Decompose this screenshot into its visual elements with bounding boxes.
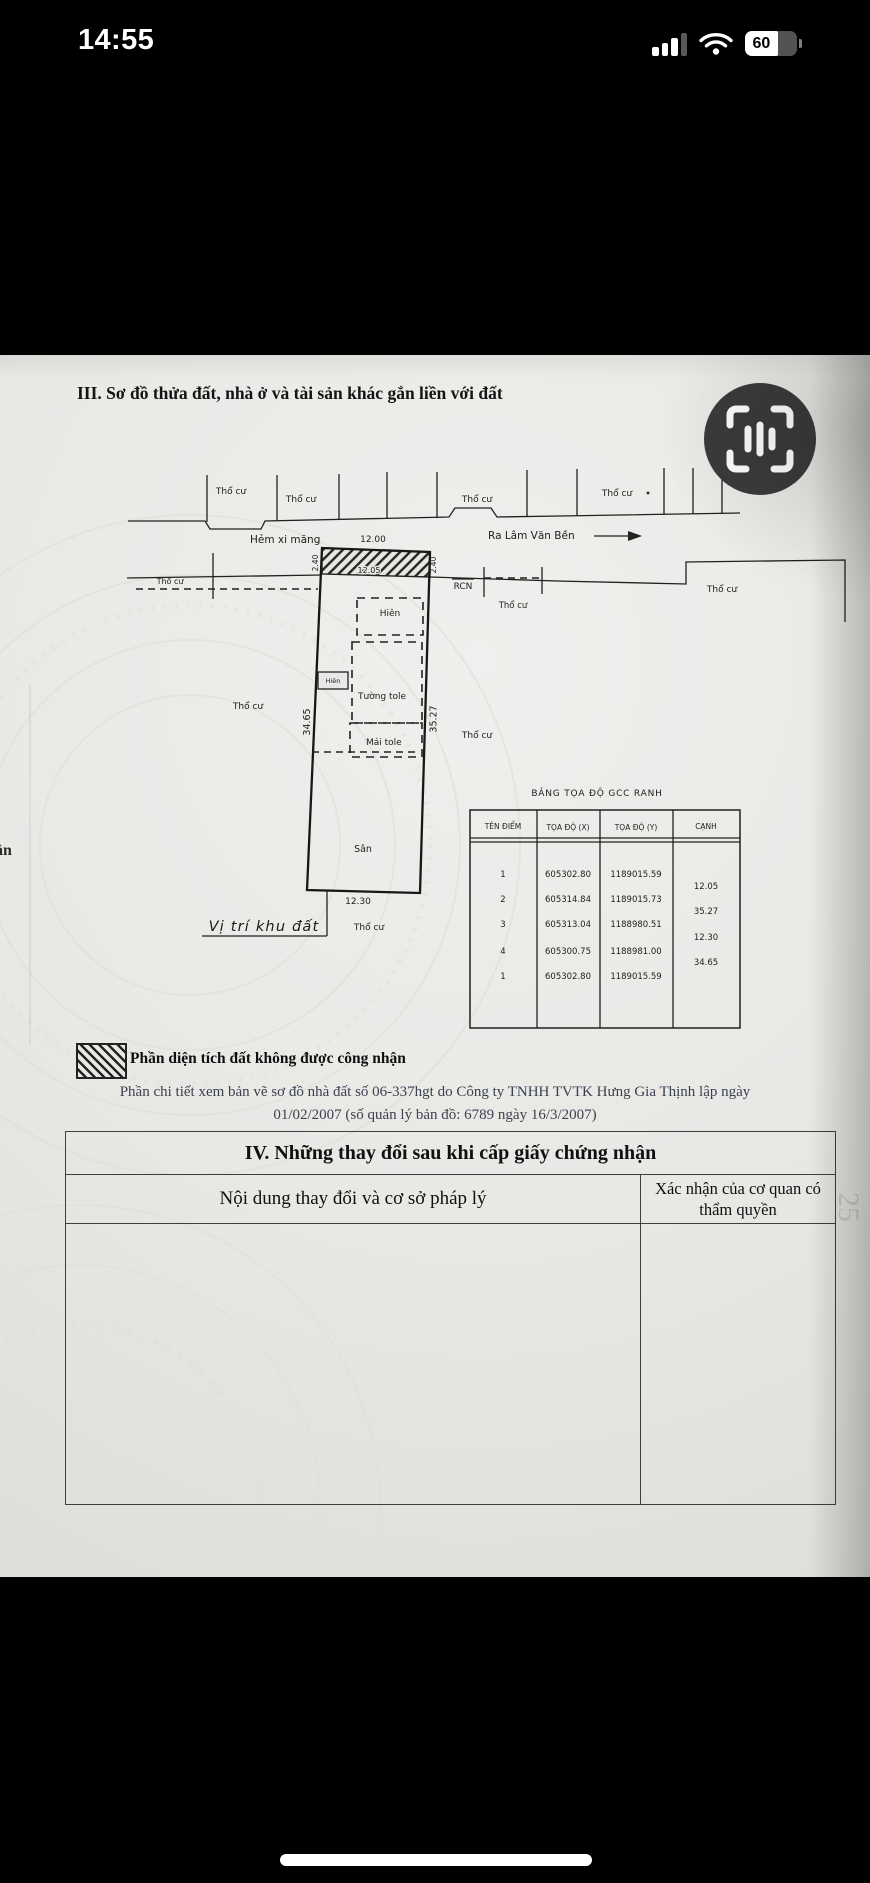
- tole-roof-label: Mái tole: [366, 738, 402, 748]
- direction-label: Ra Lâm Văn Bền: [488, 530, 575, 542]
- coord-col-header: TỌA ĐỘ (X): [545, 823, 589, 832]
- document-photo: III. Sơ đồ thửa đất, nhà ở và tài sản kh…: [0, 355, 870, 1577]
- front-dimension: 12.00: [360, 535, 386, 545]
- detail-note-line1: Phần chi tiết xem bản vẽ sơ đồ nhà đất s…: [120, 1084, 751, 1100]
- svg-text:1189015.73: 1189015.73: [610, 895, 661, 905]
- tho-cu-label: Thổ cư: [285, 494, 318, 505]
- tho-cu-label: Thổ cư: [461, 730, 494, 741]
- tho-cu-label: Thổ cư: [353, 922, 386, 933]
- scan-frame-icon: [724, 403, 796, 475]
- svg-text:605313.04: 605313.04: [545, 920, 591, 930]
- home-indicator[interactable]: [280, 1854, 592, 1866]
- coord-table-grid: [470, 810, 740, 1028]
- rcn-label: RCN: [454, 582, 473, 592]
- hatch-legend-label: Phần diện tích đất không được công nhận: [130, 1043, 406, 1075]
- detail-note: Phần chi tiết xem bản vẽ sơ đồ nhà đất s…: [40, 1081, 830, 1126]
- direction-arrowhead: [628, 531, 642, 541]
- battery-icon: 60: [745, 31, 797, 56]
- svg-text:12.05: 12.05: [694, 882, 718, 892]
- wifi-icon: [699, 31, 733, 56]
- section-4-right-header: Xác nhận của cơ quan có thẩm quyền: [640, 1175, 835, 1223]
- tho-cu-label: Thổ cư: [461, 494, 494, 505]
- tho-cu-label: Thổ cư: [601, 488, 634, 499]
- tho-cu-label: Thổ cư: [706, 584, 739, 595]
- svg-text:605300.75: 605300.75: [545, 947, 591, 957]
- battery-nub: [799, 39, 803, 48]
- coord-col-header: TỌA ĐỘ (Y): [614, 823, 658, 832]
- tole-wall-label: Tường tole: [357, 691, 407, 702]
- tho-cu-label: Thổ cư: [232, 701, 265, 712]
- svg-text:35.27: 35.27: [694, 907, 718, 917]
- back-dimension: 12.30: [345, 897, 371, 907]
- svg-text:605314.84: 605314.84: [545, 895, 591, 905]
- svg-text:1: 1: [500, 870, 505, 880]
- page-number-watermark: 25: [831, 1192, 865, 1222]
- detail-note-line2: 01/02/2007 (số quản lý bản đồ: 6789 ngày…: [273, 1107, 596, 1123]
- tole-wall-outline: [352, 642, 422, 723]
- coord-col-header: TÊN ĐIỂM: [484, 821, 522, 831]
- location-label: Vị trí khu đất: [209, 919, 320, 935]
- section-4-table: IV. Những thay đổi sau khi cấp giấy chứn…: [65, 1131, 836, 1505]
- tho-cu-label: Thổ cư: [156, 576, 185, 586]
- side-porch-label: Hiên: [326, 677, 341, 685]
- section-4-left-cell: [66, 1224, 640, 1504]
- stray-mark: [647, 492, 650, 495]
- phone-screen: 14:55 60 III. Sơ đồ thửa: [0, 0, 870, 1883]
- clock: 14:55: [78, 24, 154, 57]
- coord-col-header: CẠNH: [695, 822, 717, 831]
- svg-text:1189015.59: 1189015.59: [610, 870, 661, 880]
- section-4-right-cell: [640, 1224, 835, 1504]
- porch-label: Hiên: [380, 608, 401, 619]
- alley-north-boundary: [128, 508, 740, 529]
- cellular-signal-icon: [652, 33, 690, 56]
- svg-text:1: 1: [500, 972, 505, 982]
- svg-text:4: 4: [500, 947, 505, 957]
- yard-label: Sân: [354, 844, 372, 855]
- section-4-title: IV. Những thay đổi sau khi cấp giấy chứn…: [66, 1132, 835, 1175]
- svg-text:1189015.59: 1189015.59: [610, 972, 661, 982]
- tho-cu-label: Thổ cư: [215, 486, 248, 497]
- svg-text:605302.80: 605302.80: [545, 972, 591, 982]
- coord-table-title: BẢNG TỌA ĐỘ GCC RANH: [531, 787, 662, 799]
- setback-dimension: 2.40: [311, 554, 320, 571]
- svg-text:1188981.00: 1188981.00: [610, 947, 661, 957]
- svg-text:12.30: 12.30: [694, 933, 718, 943]
- tho-cu-label: Thổ cư: [498, 600, 528, 611]
- battery-percent: 60: [745, 31, 778, 56]
- alley-name-label: Hẻm xi măng: [250, 534, 320, 546]
- front-inner-dimension: 12.05: [358, 566, 381, 575]
- hatch-legend-swatch: [76, 1043, 127, 1079]
- right-side-dimension: 35.27: [429, 705, 440, 732]
- cadastral-diagram: Thổ cư Thổ cư Thổ cư Thổ cư Hẻm xi măng …: [0, 430, 870, 1042]
- scan-button[interactable]: [704, 383, 816, 495]
- parcel-outline: [307, 548, 430, 893]
- svg-text:605302.80: 605302.80: [545, 870, 591, 880]
- alley-south-boundary-right: [430, 560, 845, 622]
- svg-text:2: 2: [500, 895, 505, 905]
- coord-table-rows: 1 605302.80 1189015.59 2 605314.84 11890…: [500, 870, 661, 982]
- section-3-title: III. Sơ đồ thửa đất, nhà ở và tài sản kh…: [77, 383, 503, 404]
- left-side-dimension: 34.65: [302, 708, 313, 735]
- section-4-left-header: Nội dung thay đổi và cơ sở pháp lý: [66, 1175, 640, 1223]
- svg-text:1188980.51: 1188980.51: [610, 920, 661, 930]
- svg-text:34.65: 34.65: [694, 958, 718, 968]
- svg-text:3: 3: [500, 920, 505, 930]
- coord-table-edges: 12.05 35.27 12.30 34.65: [694, 882, 718, 968]
